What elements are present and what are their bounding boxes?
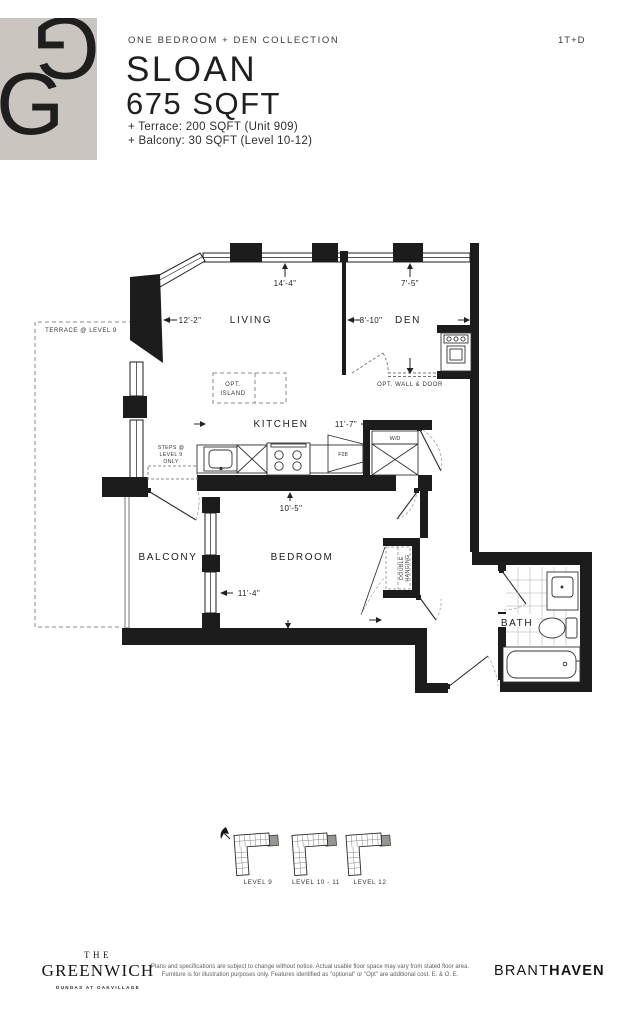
opt-island-label-1: OPT.	[225, 382, 241, 388]
balcony-label: BALCONY	[139, 552, 198, 563]
dim-bedroom-depth: 10'-5"	[280, 504, 303, 513]
steps-area	[148, 466, 197, 479]
bath-label: BATH	[501, 618, 533, 629]
terrace-note: + Terrace: 200 SQFT (Unit 909)	[128, 121, 298, 133]
living-label: LIVING	[230, 315, 272, 326]
greenwich-the: THE	[38, 950, 158, 960]
dim-bedroom-width: 11'-4"	[238, 589, 260, 598]
opt-wall-arrow	[407, 358, 414, 374]
keyplan-level-9	[230, 828, 286, 878]
balcony-note: + Balcony: 30 SQFT (Level 10-12)	[128, 135, 312, 147]
bedroom-label: BEDROOM	[271, 552, 334, 563]
steps-label-3: ONLY	[163, 459, 178, 465]
optional-wall-door	[352, 353, 438, 377]
closet-label-2: HANGING	[405, 554, 411, 581]
floorplan-sheet: G G ONE BEDROOM + DEN COLLECTION 1T+D SL…	[0, 0, 622, 1024]
keyplan-label-level-9: LEVEL 9	[225, 879, 291, 886]
keyplan-level-12	[342, 828, 398, 878]
den-label: DEN	[395, 315, 421, 326]
disclaimer: Plans and specifications are subject to …	[150, 963, 470, 979]
terrace-outline	[35, 322, 133, 627]
opt-island-label-2: ISLAND	[220, 391, 245, 397]
dim-den-depth: 8'-10"	[360, 316, 383, 325]
kitchen-label: KITCHEN	[253, 419, 308, 430]
dim-living-depth: 12'-2"	[179, 316, 202, 325]
opt-wall-label: OPT. WALL & DOOR	[377, 382, 443, 388]
monogram-icon: G G	[0, 18, 97, 160]
disclaimer-line-1: Plans and specifications are subject to …	[150, 963, 470, 971]
keyplan-level-10-11	[288, 828, 344, 878]
branthaven-part-2: HAVEN	[549, 963, 605, 979]
plan-name: SLOAN	[126, 52, 257, 88]
branthaven-part-1: BRANT	[494, 963, 549, 979]
dim-living-width: 14'-4"	[274, 279, 297, 288]
opt-island	[213, 373, 286, 403]
greenwich-tagline: DUNDAS AT OAKVILLAGE	[38, 985, 158, 990]
collection-label: ONE BEDROOM + DEN COLLECTION	[128, 35, 339, 46]
disclaimer-line-2: Furniture is for illustration purposes o…	[150, 971, 470, 979]
svg-text:G: G	[32, 18, 97, 98]
greenwich-monogram-logo: G G	[0, 18, 97, 160]
kitchen-fixtures	[197, 333, 471, 475]
keyplan-label-level-12: LEVEL 12	[337, 879, 403, 886]
greenwich-name: GREENWICH	[38, 961, 158, 981]
dim-den-width: 7'-5"	[401, 279, 419, 288]
branthaven-wordmark: BRANTHAVEN	[494, 963, 605, 979]
plan-area: 675 SQFT	[126, 87, 281, 120]
dim-kitchen-width: 11'-7"	[335, 420, 357, 429]
fridge-label: F28	[338, 452, 347, 458]
steps-label-1: STEPS @	[158, 445, 185, 451]
floor-plan: TERRACE @ LEVEL 9	[0, 225, 622, 725]
washer-dryer-label: W/D	[390, 436, 401, 442]
greenwich-wordmark: THE GREENWICH DUNDAS AT OAKVILLAGE	[38, 950, 158, 990]
steps-label-2: LEVEL 9	[159, 452, 182, 458]
plan-type-code: 1T+D	[558, 35, 586, 46]
terrace-label: TERRACE @ LEVEL 9	[45, 328, 117, 334]
